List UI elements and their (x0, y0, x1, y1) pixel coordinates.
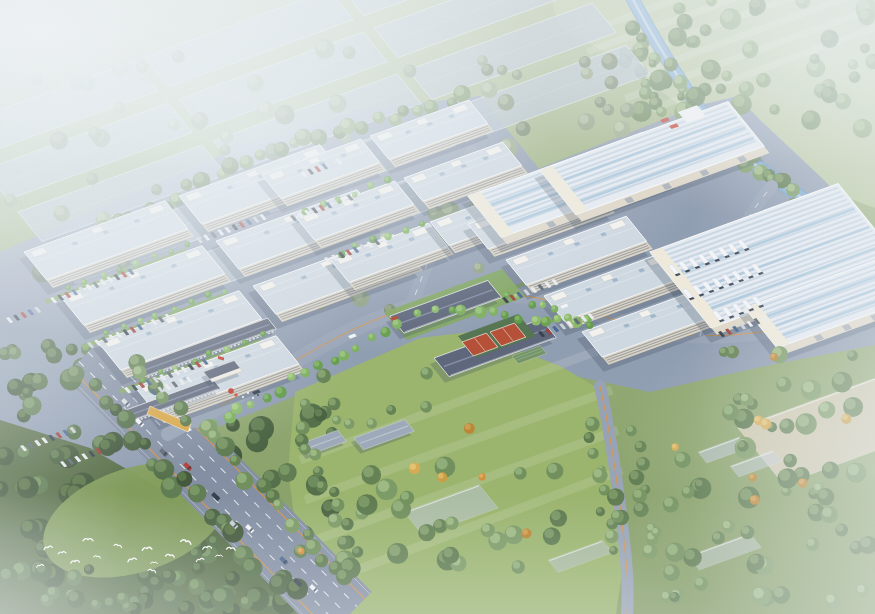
viewport (0, 0, 875, 614)
aerial-site-plan-rendering (0, 0, 875, 614)
fog-veil (0, 0, 875, 614)
